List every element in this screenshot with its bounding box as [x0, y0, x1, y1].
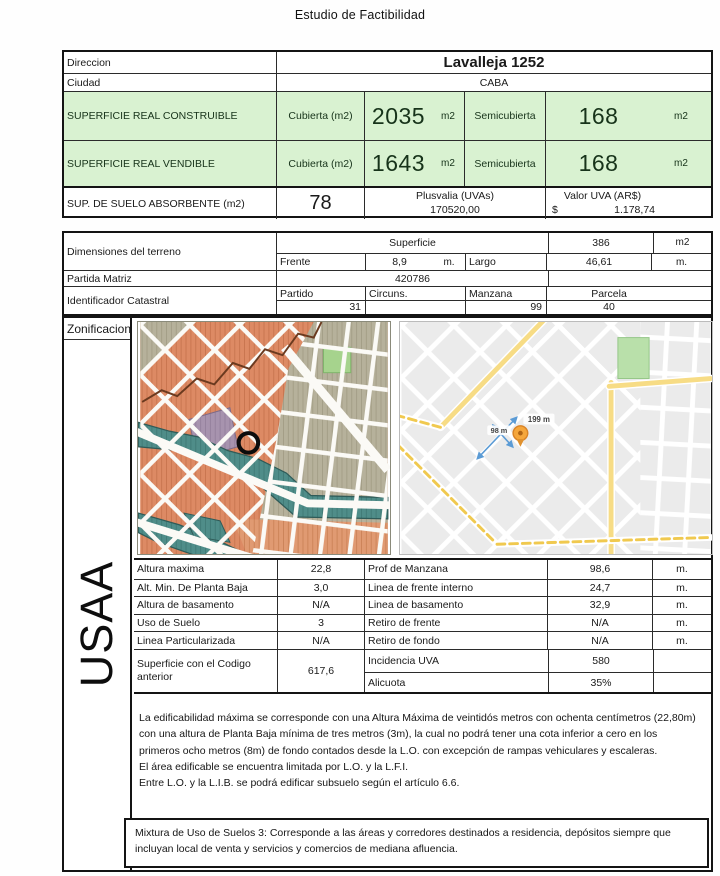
note-edificabilidad: La edificabilidad máxima se corresponde … — [134, 694, 711, 759]
circuns-label: Circuns. — [365, 287, 465, 299]
partida-matriz-label: Partida Matriz — [64, 270, 276, 286]
superficie-unit: m2 — [653, 233, 711, 253]
attr-label: Altura de basamento — [134, 597, 277, 614]
valor-uva-value: 1.178,74 — [614, 204, 655, 217]
zoning-map-image — [138, 322, 390, 554]
attr-label-codigo-anterior: Superficie con el Codigo anterior — [134, 650, 277, 692]
partida-matriz-empty — [548, 271, 711, 286]
zoning-attributes-table: Altura maxima 22,8 Prof de Manzana 98,6 … — [134, 558, 711, 692]
measure-label-long: 199 m — [528, 415, 550, 424]
mixtura-note-text: Mixtura de Uso de Suelos 3: Corresponde … — [135, 827, 671, 855]
maps-row: 199 m 98 m — [134, 318, 711, 558]
attr-value: 35% — [548, 673, 653, 692]
suelo-absorbente-value: 78 — [276, 188, 364, 219]
attr-value-codigo-anterior: 617,6 — [277, 650, 364, 692]
zoning-section: Zonificacion USAA — [62, 316, 713, 872]
circuns-value — [365, 301, 465, 314]
superficie-vendible-label: SUPERFICIE REAL VENDIBLE — [64, 141, 276, 186]
zoning-code: USAA — [71, 561, 123, 688]
partido-label: Partido — [277, 287, 365, 299]
direccion-value: Lavalleja 1252 — [276, 52, 711, 73]
frente-unit: m. — [433, 257, 465, 268]
attr-value: 98,6 — [547, 560, 652, 579]
terrain-table: Dimensiones del terreno Partida Matriz I… — [62, 231, 713, 316]
ciudad-value: CABA — [276, 74, 711, 91]
attr-label: Incidencia UVA — [365, 650, 548, 672]
attr-value: N/A — [277, 632, 364, 649]
attr-value: N/A — [547, 615, 652, 632]
semicubierta-label: Semicubierta — [464, 92, 545, 140]
attr-label: Uso de Suelo — [134, 615, 277, 632]
semicubierta-value-2: 168 — [546, 150, 651, 177]
attr-value: 22,8 — [277, 560, 364, 579]
attr-value: N/A — [277, 597, 364, 614]
attr-unit: m. — [652, 597, 711, 614]
parcela-label: Parcela — [546, 287, 711, 299]
identificador-catastral-label: Identificador Catastral — [64, 286, 276, 314]
largo-label: Largo — [465, 254, 546, 270]
page-title: Estudio de Factibilidad — [0, 8, 720, 22]
location-pin-center — [518, 431, 523, 436]
attr-label: Retiro de fondo — [364, 632, 547, 649]
largo-value: 46,61 — [546, 254, 651, 270]
attr-label: Alicuota — [365, 673, 548, 692]
cubierta-unit: m2 — [432, 111, 464, 122]
attr-label: Alt. Min. De Planta Baja — [134, 580, 277, 597]
manzana-label: Manzana — [465, 287, 546, 299]
suelo-absorbente-label: SUP. DE SUELO ABSORBENTE (m2) — [64, 188, 276, 219]
attr-value: 32,9 — [547, 597, 652, 614]
dimensiones-label: Dimensiones del terreno — [64, 233, 276, 270]
measure-label-short: 98 m — [491, 426, 508, 435]
frente-value: 8,9 — [366, 256, 433, 268]
frente-label: Frente — [277, 254, 365, 270]
plusvalia-value: 170520,00 — [430, 204, 480, 217]
attr-unit — [653, 673, 711, 692]
attr-unit: m. — [652, 580, 711, 597]
attr-label: Linea de basamento — [364, 597, 547, 614]
attr-unit: m. — [652, 632, 711, 649]
feasibility-study-page: Estudio de Factibilidad Direccion Lavall… — [0, 0, 720, 876]
attr-value: 3 — [277, 615, 364, 632]
street-map: 199 m 98 m — [399, 321, 713, 555]
attr-value: N/A — [547, 632, 652, 649]
partido-value: 31 — [277, 301, 365, 314]
manzana-value: 99 — [465, 301, 546, 314]
street-map-image: 199 m 98 m — [400, 322, 712, 554]
cubierta-value-2: 1643 — [365, 150, 432, 177]
valor-uva-label: Valor UVA (AR$) — [546, 190, 711, 203]
semicubierta-value: 168 — [546, 103, 651, 130]
attr-unit: m. — [652, 615, 711, 632]
attr-value: 3,0 — [277, 580, 364, 597]
attr-label: Linea Particularizada — [134, 632, 277, 649]
partida-matriz-value: 420786 — [277, 271, 548, 286]
plusvalia-label: Plusvalia (UVAs) — [416, 190, 494, 203]
semicubierta-label-2: Semicubierta — [464, 141, 545, 186]
note-subsuelo: Entre L.O. y la L.I.B. se podrá edificar… — [134, 775, 711, 791]
attr-label: Altura maxima — [134, 560, 277, 579]
park-area — [618, 338, 649, 379]
attr-unit: m. — [652, 560, 711, 579]
attr-value: 580 — [548, 650, 653, 672]
cubierta-label-2: Cubierta (m2) — [276, 141, 364, 186]
attr-label: Prof de Manzana — [364, 560, 547, 579]
superficie-label: Superficie — [277, 233, 548, 253]
ciudad-label: Ciudad — [64, 74, 276, 91]
direccion-label: Direccion — [64, 52, 276, 73]
zonificacion-label: Zonificacion — [64, 318, 130, 340]
largo-unit: m. — [651, 254, 711, 270]
cubierta-value: 2035 — [365, 103, 432, 130]
attr-unit — [653, 650, 711, 672]
zoning-notes: La edificabilidad máxima se corresponde … — [134, 692, 711, 870]
attr-label: Retiro de frente — [364, 615, 547, 632]
parcela-value: 40 — [546, 301, 711, 314]
zoning-map — [137, 321, 391, 555]
attr-value: 24,7 — [547, 580, 652, 597]
currency-symbol: $ — [552, 204, 558, 217]
mixtura-note-box: Mixtura de Uso de Suelos 3: Corresponde … — [124, 818, 709, 868]
superficie-construible-label: SUPERFICIE REAL CONSTRUIBLE — [64, 92, 276, 140]
note-area-edificable: El área edificable se encuentra limitada… — [134, 759, 711, 775]
superficie-value: 386 — [548, 233, 653, 253]
cubierta-unit-2: m2 — [432, 158, 464, 169]
cubierta-label: Cubierta (m2) — [276, 92, 364, 140]
zoning-left-column: Zonificacion USAA — [64, 318, 132, 870]
semicubierta-unit: m2 — [651, 111, 711, 122]
header-table: Direccion Lavalleja 1252 Ciudad CABA SUP… — [62, 50, 713, 218]
semicubierta-unit-2: m2 — [651, 158, 711, 169]
attr-label: Linea de frente interno — [364, 580, 547, 597]
